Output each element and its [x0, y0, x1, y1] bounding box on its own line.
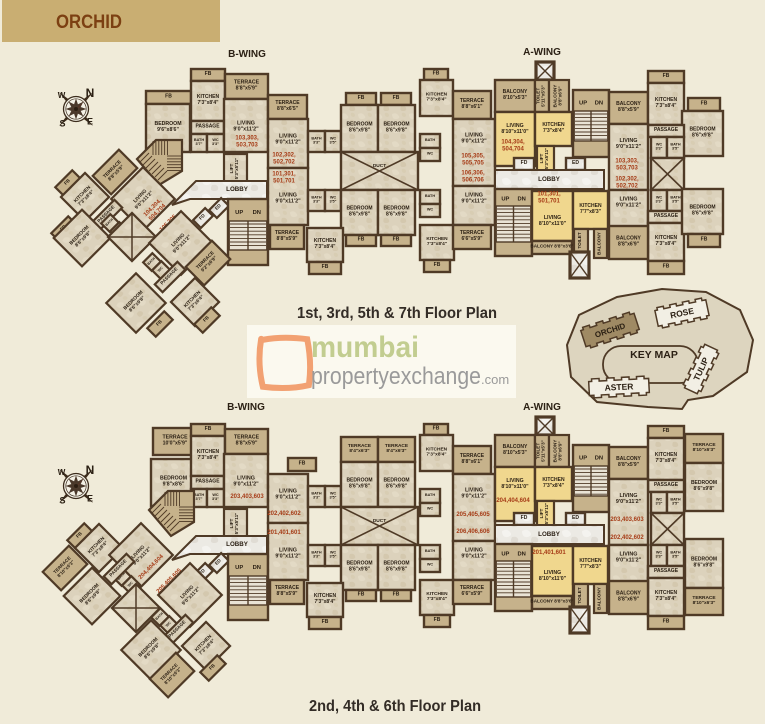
svg-text:BALCONY8'8"x5'9": BALCONY8'8"x5'9" — [616, 101, 641, 113]
svg-text:WC: WC — [427, 152, 434, 156]
svg-text:LOBBY: LOBBY — [538, 531, 561, 538]
svg-text:DN: DN — [595, 455, 603, 461]
svg-text:UP: UP — [235, 565, 243, 571]
svg-text:TERRACE8'8"x5'9": TERRACE8'8"x5'9" — [234, 80, 260, 92]
svg-text:TERRACE8'10"x6'3": TERRACE8'10"x6'3" — [692, 442, 716, 453]
svg-text:KITCHEN7'3"x8'4": KITCHEN7'3"x8'4" — [197, 449, 220, 461]
svg-text:104,304,504,704: 104,304,504,704 — [501, 140, 525, 153]
svg-text:N: N — [86, 463, 95, 477]
svg-text:BALCONY 8'8"x3'6": BALCONY 8'8"x3'6" — [530, 244, 573, 249]
svg-text:DN: DN — [517, 552, 525, 558]
svg-text:PASSAGE: PASSAGE — [654, 482, 679, 488]
svg-text:101,301,501,701: 101,301,501,701 — [272, 172, 296, 185]
svg-text:S: S — [59, 496, 65, 506]
svg-text:mumbai: mumbai — [311, 331, 419, 364]
svg-text:TERRACE8'8"x5'9": TERRACE8'8"x5'9" — [275, 230, 300, 242]
svg-text:E: E — [87, 494, 93, 504]
svg-text:WC3'3": WC3'3" — [656, 497, 663, 505]
svg-text:BEDROOM9'6"x8'6": BEDROOM9'6"x8'6" — [154, 121, 181, 133]
svg-text:BALCONY 8'8"x3'6": BALCONY 8'8"x3'6" — [530, 599, 573, 604]
svg-text:205,405,605: 205,405,605 — [456, 512, 490, 518]
svg-text:ED: ED — [572, 160, 579, 166]
svg-text:201,401,601: 201,401,601 — [267, 530, 301, 536]
svg-text:WC: WC — [427, 507, 434, 511]
svg-text:FB: FB — [299, 461, 306, 467]
svg-text:UP: UP — [501, 552, 509, 558]
svg-text:BEDROOM8'6"x9'8": BEDROOM8'6"x9'8" — [691, 557, 717, 569]
svg-text:BALCONY8'8"x6'9": BALCONY8'8"x6'9" — [552, 85, 562, 108]
svg-text:BALCONY: BALCONY — [597, 587, 602, 610]
svg-text:PASSAGE: PASSAGE — [654, 213, 679, 219]
svg-text:BEDROOM8'6"x9'8": BEDROOM8'6"x9'8" — [383, 206, 409, 218]
svg-text:UP: UP — [579, 455, 587, 461]
svg-text:KITCHEN7'3"x8'4": KITCHEN7'3"x8'4" — [542, 477, 565, 489]
svg-text:106,306,506,706: 106,306,506,706 — [461, 171, 485, 184]
svg-text:A-WING: A-WING — [523, 402, 561, 413]
svg-text:BALCONY8'8"x5'9": BALCONY8'8"x5'9" — [616, 456, 641, 468]
svg-text:BEDROOM9'8"x8'6": BEDROOM9'8"x8'6" — [160, 476, 187, 488]
svg-text:KEY MAP: KEY MAP — [630, 349, 678, 361]
svg-text:TOILET5'11"x5'3": TOILET5'11"x5'3" — [535, 85, 545, 107]
svg-text:DN: DN — [595, 100, 603, 106]
svg-text:TOILET: TOILET — [577, 587, 582, 603]
svg-text:201,401,601: 201,401,601 — [532, 550, 566, 556]
svg-text:KITCHEN7'3"x8'4": KITCHEN7'3"x8'4" — [655, 452, 678, 464]
svg-text:TERRACE8'8"x6'1": TERRACE8'8"x6'1" — [460, 98, 485, 110]
svg-text:TERRACE8'8"x5'9": TERRACE8'8"x5'9" — [234, 435, 260, 447]
svg-text:203,403,603: 203,403,603 — [610, 517, 644, 523]
svg-text:LOBBY: LOBBY — [226, 186, 249, 193]
svg-text:FB: FB — [165, 94, 172, 100]
svg-text:BATH: BATH — [425, 138, 436, 142]
svg-text:TERRACE6'6"x5'9": TERRACE6'6"x5'9" — [460, 585, 485, 597]
svg-text:202,402,602: 202,402,602 — [610, 535, 644, 541]
svg-text:TERRACE8'8"x6'5": TERRACE8'8"x6'5" — [275, 100, 300, 112]
svg-text:BEDROOM8'6"x9'8": BEDROOM8'6"x9'8" — [689, 205, 715, 217]
svg-text:PASSAGE: PASSAGE — [195, 124, 220, 130]
svg-text:TERRACE8'8"x5'9": TERRACE8'8"x5'9" — [275, 585, 300, 597]
svg-text:UP: UP — [501, 197, 509, 203]
svg-text:105,305,505,705: 105,305,505,705 — [461, 154, 485, 167]
svg-text:KITCHEN7'3"x8'4": KITCHEN7'3"x8'4" — [314, 593, 337, 605]
svg-text:FB: FB — [358, 95, 365, 101]
svg-text:KITCHEN7'3"x8'4": KITCHEN7'3"x8'4" — [542, 122, 565, 134]
svg-text:WC3'3": WC3'3" — [212, 138, 219, 146]
svg-text:FB: FB — [322, 619, 329, 625]
svg-text:FB: FB — [434, 262, 441, 268]
svg-text:BEDROOM8'6"x9'8": BEDROOM8'6"x9'8" — [383, 478, 409, 490]
svg-text:TERRACE10'0"x5'9": TERRACE10'0"x5'9" — [162, 435, 188, 447]
svg-text:FB: FB — [663, 73, 670, 79]
svg-text:FB: FB — [205, 426, 212, 432]
svg-text:ED: ED — [572, 515, 579, 521]
svg-text:101,301,501,701: 101,301,501,701 — [537, 192, 561, 205]
svg-text:BEDROOM8'6"x9'8": BEDROOM8'6"x9'8" — [383, 561, 409, 573]
svg-text:DUCT: DUCT — [373, 518, 386, 524]
svg-text:202,402,602: 202,402,602 — [267, 511, 301, 517]
svg-text:WC3'3": WC3'3" — [656, 142, 663, 150]
svg-text:FB: FB — [205, 71, 212, 77]
svg-text:2nd, 4th & 6th Floor Plan: 2nd, 4th & 6th Floor Plan — [309, 698, 481, 715]
svg-text:WC3'3": WC3'3" — [212, 493, 219, 501]
svg-text:FB: FB — [701, 101, 708, 107]
svg-text:BALCONY8'10"x5'3": BALCONY8'10"x5'3" — [503, 89, 528, 101]
svg-text:WC3'3": WC3'3" — [656, 195, 663, 203]
svg-text:E: E — [87, 117, 93, 127]
svg-text:KITCHEN7'3"x8'4": KITCHEN7'3"x8'4" — [426, 446, 448, 457]
svg-text:KITCHEN7'3"x8'4": KITCHEN7'3"x8'4" — [426, 591, 448, 602]
svg-text:WC: WC — [427, 563, 434, 567]
svg-text:TOILET5'11"x5'3": TOILET5'11"x5'3" — [535, 440, 545, 462]
svg-text:103,303,503,703: 103,303,503,703 — [615, 159, 639, 172]
svg-text:BATH: BATH — [425, 194, 436, 198]
svg-text:BATH: BATH — [425, 493, 436, 497]
svg-text:TOILET: TOILET — [577, 232, 582, 248]
svg-text:TERRACE8'10"x6'3": TERRACE8'10"x6'3" — [692, 595, 716, 606]
svg-text:LOBBY: LOBBY — [538, 176, 561, 183]
svg-text:BEDROOM8'6"x9'8": BEDROOM8'6"x9'8" — [691, 480, 717, 492]
svg-text:FB: FB — [393, 592, 400, 598]
svg-text:KITCHEN7'3"x8'4": KITCHEN7'3"x8'4" — [314, 238, 337, 250]
svg-text:WC3'5": WC3'5" — [330, 195, 337, 203]
svg-text:FB: FB — [433, 426, 440, 432]
svg-text:KITCHEN7'3"x8'4": KITCHEN7'3"x8'4" — [197, 94, 220, 106]
svg-text:WC3'5": WC3'5" — [330, 550, 337, 558]
svg-text:UP: UP — [579, 100, 587, 106]
svg-text:WC: WC — [427, 208, 434, 212]
svg-text:PASSAGE: PASSAGE — [654, 568, 679, 574]
svg-text:FB: FB — [322, 264, 329, 270]
svg-text:KITCHEN7'7"x8'3": KITCHEN7'7"x8'3" — [579, 558, 602, 570]
svg-text:PASSAGE: PASSAGE — [195, 479, 220, 485]
svg-text:FB: FB — [434, 617, 441, 623]
svg-text:DUCT: DUCT — [373, 163, 386, 169]
svg-text:206,406,606: 206,406,606 — [456, 529, 490, 535]
svg-text:S: S — [59, 119, 65, 129]
svg-text:204,404,604: 204,404,604 — [496, 498, 530, 504]
svg-text:TERRACE8'8"x6'1": TERRACE8'8"x6'1" — [460, 453, 485, 465]
svg-text:203,403,603: 203,403,603 — [230, 494, 264, 500]
svg-text:TERRACE6'6"x5'9": TERRACE6'6"x5'9" — [460, 230, 485, 242]
svg-text:KITCHEN7'3"x8'4": KITCHEN7'3"x8'4" — [655, 590, 678, 602]
svg-text:FB: FB — [358, 237, 365, 243]
svg-text:PASSAGE: PASSAGE — [654, 127, 679, 133]
svg-text:FB: FB — [701, 237, 708, 243]
svg-text:BALCONY8'8"x6'9": BALCONY8'8"x6'9" — [552, 440, 562, 463]
svg-text:102,302,502,702: 102,302,502,702 — [272, 153, 296, 166]
svg-text:FB: FB — [393, 95, 400, 101]
svg-text:BALCONY8'8"x6'9": BALCONY8'8"x6'9" — [616, 591, 641, 603]
svg-text:BEDROOM8'6"x9'8": BEDROOM8'6"x9'8" — [346, 561, 372, 573]
svg-text:FB: FB — [663, 264, 670, 270]
svg-text:KITCHEN7'3"x8'4": KITCHEN7'3"x8'4" — [426, 236, 448, 247]
svg-text:WC3'3": WC3'3" — [656, 550, 663, 558]
svg-text:1st, 3rd, 5th & 7th Floor Plan: 1st, 3rd, 5th & 7th Floor Plan — [297, 305, 497, 322]
svg-text:BALCONY8'10"x5'3": BALCONY8'10"x5'3" — [503, 444, 528, 456]
svg-text:FD: FD — [521, 515, 528, 521]
svg-text:FB: FB — [663, 428, 670, 434]
svg-text:BEDROOM8'6"x9'8": BEDROOM8'6"x9'8" — [383, 122, 409, 134]
svg-text:DN: DN — [253, 210, 261, 216]
svg-text:KITCHEN7'3"x8'4": KITCHEN7'3"x8'4" — [426, 91, 448, 102]
svg-text:BEDROOM8'6"x9'8": BEDROOM8'6"x9'8" — [346, 478, 372, 490]
svg-text:WC3'5": WC3'5" — [330, 491, 337, 499]
svg-text:103,303,503,703: 103,303,503,703 — [235, 136, 259, 149]
svg-text:DN: DN — [253, 565, 261, 571]
svg-text:ASTER: ASTER — [604, 381, 633, 392]
svg-text:KITCHEN7'3"x8'4": KITCHEN7'3"x8'4" — [655, 97, 678, 109]
svg-text:FD: FD — [521, 160, 528, 166]
svg-text:N: N — [86, 86, 95, 100]
svg-text:W: W — [58, 468, 66, 477]
svg-text:UP: UP — [235, 210, 243, 216]
svg-text:TERRACE8'4"x6'3": TERRACE8'4"x6'3" — [385, 443, 409, 454]
svg-text:102,302,502,702: 102,302,502,702 — [615, 177, 639, 190]
svg-text:B-WING: B-WING — [227, 402, 265, 413]
svg-text:LOBBY: LOBBY — [226, 541, 249, 548]
svg-text:BATH: BATH — [425, 549, 436, 553]
svg-text:KITCHEN7'7"x8'3": KITCHEN7'7"x8'3" — [579, 203, 602, 215]
svg-text:WC3'5": WC3'5" — [330, 136, 337, 144]
svg-text:FB: FB — [358, 592, 365, 598]
svg-text:DN: DN — [517, 197, 525, 203]
svg-text:FB: FB — [663, 619, 670, 625]
svg-text:BALCONY: BALCONY — [597, 232, 602, 255]
svg-text:TERRACE8'4"x6'3": TERRACE8'4"x6'3" — [348, 443, 372, 454]
svg-text:A-WING: A-WING — [523, 47, 561, 58]
svg-text:BEDROOM8'6"x9'8": BEDROOM8'6"x9'8" — [689, 127, 715, 139]
svg-text:FB: FB — [393, 237, 400, 243]
svg-text:FB: FB — [433, 71, 440, 77]
svg-text:.com: .com — [481, 372, 509, 387]
svg-text:BEDROOM8'6"x9'8": BEDROOM8'6"x9'8" — [346, 206, 372, 218]
svg-text:BALCONY8'8"x6'9": BALCONY8'8"x6'9" — [616, 236, 641, 248]
svg-text:W: W — [58, 91, 66, 100]
svg-text:propertyexchange: propertyexchange — [311, 363, 481, 390]
svg-text:ORCHID: ORCHID — [56, 12, 122, 33]
svg-text:BEDROOM8'6"x9'8": BEDROOM8'6"x9'8" — [346, 122, 372, 134]
svg-text:KITCHEN7'3"x8'4": KITCHEN7'3"x8'4" — [655, 235, 678, 247]
svg-text:B-WING: B-WING — [228, 49, 266, 60]
